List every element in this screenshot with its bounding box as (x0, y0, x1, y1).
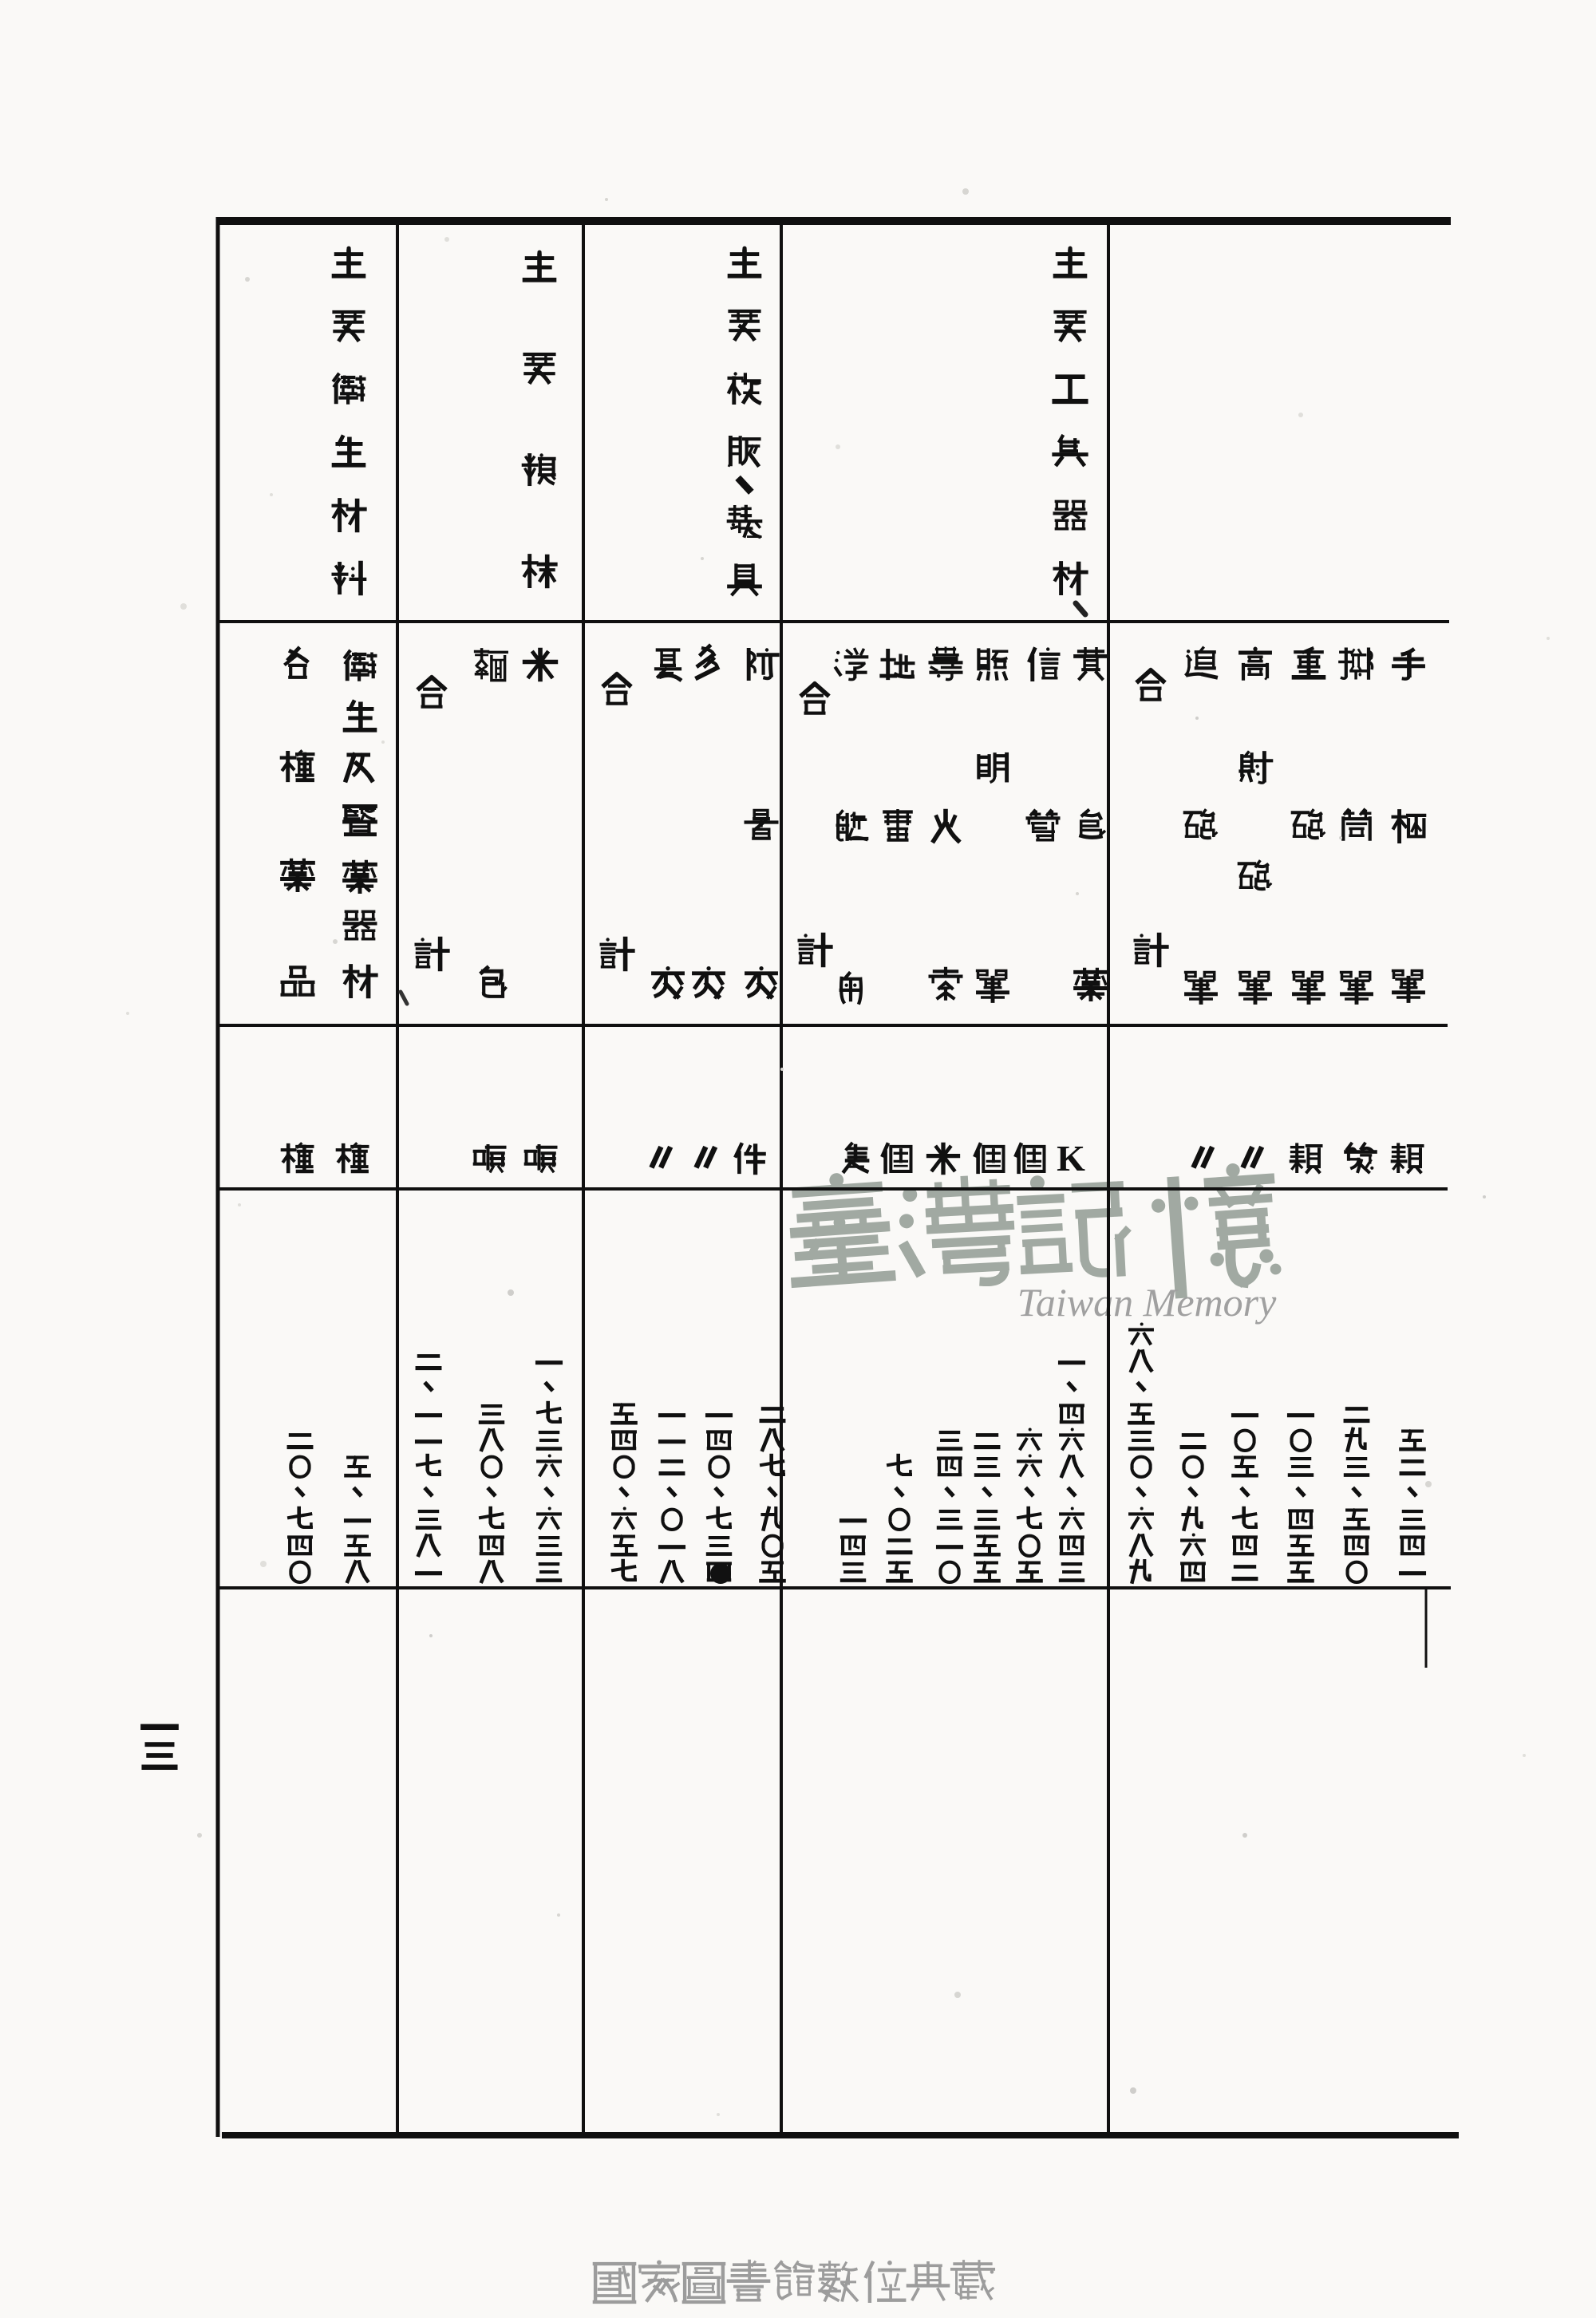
svg-text:Taiwan Memory: Taiwan Memory (1017, 1280, 1277, 1325)
svg-text:K: K (1057, 1138, 1085, 1179)
